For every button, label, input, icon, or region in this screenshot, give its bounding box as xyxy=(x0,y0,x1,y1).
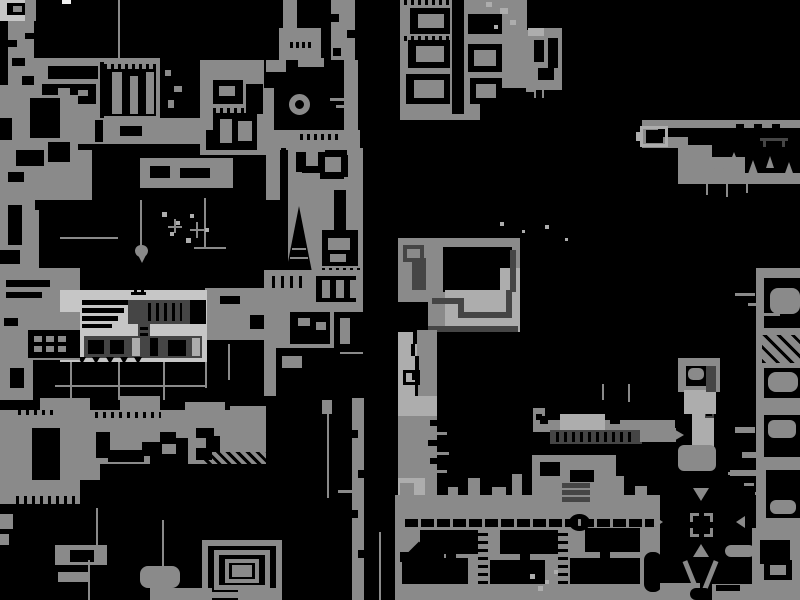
map-shape xyxy=(134,357,142,364)
map-shape xyxy=(266,130,280,200)
map-shape xyxy=(176,221,180,225)
map-shape xyxy=(430,458,437,464)
map-shape xyxy=(744,483,754,486)
map-shape xyxy=(18,410,58,415)
map-shape xyxy=(48,66,98,79)
teardrop-icon xyxy=(138,255,146,263)
selection-bracket xyxy=(690,534,699,537)
map-shape xyxy=(522,230,525,233)
map-shape xyxy=(95,120,103,142)
map-shape xyxy=(336,105,354,108)
map-shape xyxy=(219,86,235,96)
map-shape xyxy=(770,565,786,575)
map-shape xyxy=(205,362,207,388)
map-shape xyxy=(398,302,428,332)
map-shape xyxy=(500,530,558,554)
map-shape xyxy=(334,190,346,232)
map-shape xyxy=(333,48,341,56)
map-shape xyxy=(510,250,516,292)
map-shape xyxy=(490,560,545,584)
map-shape xyxy=(344,60,358,130)
map-shape xyxy=(735,427,755,433)
map-shape xyxy=(190,229,204,231)
map-shape xyxy=(204,452,266,480)
map-shape xyxy=(150,338,158,356)
map-shape xyxy=(782,141,785,147)
map-shape xyxy=(766,156,774,168)
map-shape xyxy=(538,586,543,591)
compass-right-arrow xyxy=(654,516,663,528)
map-shape xyxy=(290,257,308,259)
map-shape xyxy=(430,420,437,426)
map-shape xyxy=(60,237,118,239)
map-shape xyxy=(402,519,656,527)
map-shape xyxy=(150,454,180,464)
map-shape xyxy=(322,280,330,298)
map-shape xyxy=(316,322,326,330)
map-shape xyxy=(204,198,206,248)
ellipse-marker xyxy=(569,514,590,531)
map-shape xyxy=(140,327,148,330)
map-shape xyxy=(640,428,676,442)
map-shape xyxy=(534,86,536,98)
map-shape xyxy=(185,402,225,412)
map-shape xyxy=(58,346,66,352)
map-shape xyxy=(148,303,182,321)
map-shape xyxy=(220,119,232,143)
map-shape xyxy=(748,303,764,306)
map-shape xyxy=(8,205,22,245)
map-shape xyxy=(560,414,605,430)
map-shape xyxy=(108,450,144,462)
map-shape xyxy=(602,384,604,400)
map-shape xyxy=(25,0,36,21)
map-shape xyxy=(500,222,504,226)
map-shape xyxy=(168,100,174,108)
map-shape xyxy=(754,124,762,138)
map-shape xyxy=(763,141,766,147)
map-shape xyxy=(545,580,549,584)
map-shape xyxy=(118,362,120,400)
map-shape xyxy=(458,312,512,318)
map-shape xyxy=(748,160,758,174)
map-shape xyxy=(400,483,414,495)
map-shape xyxy=(95,412,161,418)
map-shape xyxy=(25,210,39,275)
map-shape xyxy=(82,308,124,313)
map-shape xyxy=(174,86,182,92)
map-shape xyxy=(570,558,640,584)
map-shape xyxy=(330,98,352,101)
map-shape xyxy=(82,324,112,328)
map-shape xyxy=(540,416,548,424)
map-shape xyxy=(352,398,364,600)
map-shape xyxy=(352,430,358,438)
map-shape xyxy=(534,40,544,62)
world-map xyxy=(0,0,800,600)
map-shape xyxy=(706,366,716,392)
map-shape xyxy=(437,470,447,473)
map-shape xyxy=(25,33,34,39)
map-shape xyxy=(327,414,329,498)
map-shape xyxy=(12,58,25,66)
selection-bracket xyxy=(690,513,693,522)
map-shape xyxy=(562,490,590,495)
map-shape xyxy=(428,440,437,446)
map-shape xyxy=(562,483,590,488)
map-shape xyxy=(336,280,344,298)
map-shape xyxy=(28,330,80,358)
compass-up-arrow xyxy=(693,544,709,557)
map-shape xyxy=(600,552,610,560)
map-shape xyxy=(220,296,240,304)
map-shape xyxy=(58,336,66,342)
map-shape xyxy=(264,88,274,130)
map-shape xyxy=(554,570,558,574)
map-shape xyxy=(542,86,544,98)
map-shape xyxy=(558,530,568,584)
map-shape xyxy=(0,514,13,529)
map-shape xyxy=(280,130,360,150)
map-shape xyxy=(476,84,496,98)
map-shape xyxy=(556,432,636,442)
map-shape xyxy=(330,254,346,262)
map-shape xyxy=(628,384,630,402)
map-shape xyxy=(238,121,252,141)
map-shape xyxy=(474,50,496,66)
map-shape xyxy=(34,336,42,342)
map-shape xyxy=(190,300,206,324)
map-shape xyxy=(46,336,54,342)
map-shape xyxy=(6,280,50,287)
map-shape xyxy=(585,528,640,552)
map-shape xyxy=(318,152,325,172)
map-shape xyxy=(118,0,120,58)
map-shape xyxy=(32,428,60,480)
map-shape xyxy=(690,588,711,600)
map-shape xyxy=(678,445,716,471)
map-shape xyxy=(736,124,744,136)
map-shape xyxy=(82,300,130,305)
map-shape xyxy=(494,25,498,29)
map-shape xyxy=(48,142,70,162)
map-shape xyxy=(548,38,558,68)
map-shape xyxy=(194,247,226,249)
nested-squares xyxy=(232,565,252,577)
map-shape xyxy=(0,250,20,264)
map-shape xyxy=(46,346,54,352)
map-shape xyxy=(162,212,167,217)
map-shape xyxy=(292,248,306,250)
map-shape xyxy=(340,318,350,344)
map-shape xyxy=(120,126,142,136)
map-shape xyxy=(110,340,124,354)
map-shape xyxy=(492,487,506,495)
map-shape xyxy=(0,534,9,545)
map-shape xyxy=(290,42,314,48)
map-shape xyxy=(570,470,594,482)
map-shape xyxy=(411,344,415,356)
map-shape xyxy=(55,385,207,387)
hash-icon xyxy=(131,286,146,289)
map-shape xyxy=(437,432,447,435)
map-shape xyxy=(70,550,94,562)
selection-bracket xyxy=(704,534,713,537)
map-shape xyxy=(328,238,350,250)
map-shape xyxy=(272,276,308,288)
hash-icon xyxy=(131,292,146,295)
map-shape xyxy=(286,206,312,272)
map-shape xyxy=(528,28,544,36)
map-shape xyxy=(352,510,358,518)
map-shape xyxy=(230,406,266,414)
map-shape xyxy=(282,356,302,368)
map-shape xyxy=(16,496,78,505)
map-shape xyxy=(206,130,213,150)
map-shape xyxy=(562,497,590,502)
map-shape xyxy=(770,500,796,514)
map-shape xyxy=(742,452,758,458)
map-shape xyxy=(510,20,516,25)
map-shape xyxy=(755,492,763,495)
map-shape xyxy=(162,520,164,566)
map-shape xyxy=(174,219,176,233)
map-shape xyxy=(735,293,755,296)
map-shape xyxy=(130,76,138,114)
map-shape xyxy=(404,36,450,41)
map-shape xyxy=(266,60,286,72)
map-shape xyxy=(62,0,71,4)
map-shape xyxy=(610,418,620,424)
map-shape xyxy=(96,508,98,548)
map-shape xyxy=(400,552,444,562)
ring-icon xyxy=(289,94,310,115)
map-shape xyxy=(714,158,724,170)
map-shape xyxy=(22,76,34,85)
map-shape xyxy=(163,362,165,400)
map-shape xyxy=(205,228,209,232)
map-shape xyxy=(88,340,104,354)
map-shape xyxy=(635,486,647,495)
map-shape xyxy=(13,6,22,12)
selection-bracket xyxy=(710,513,713,522)
map-shape xyxy=(88,560,90,600)
map-shape xyxy=(772,124,780,136)
map-shape xyxy=(379,532,381,600)
map-shape xyxy=(146,72,154,114)
map-shape xyxy=(636,132,642,141)
map-shape xyxy=(418,14,444,28)
map-shape xyxy=(512,474,522,495)
map-shape xyxy=(180,168,210,178)
map-shape xyxy=(10,368,24,388)
map-shape xyxy=(6,292,42,298)
map-shape xyxy=(784,162,794,176)
map-shape xyxy=(746,183,748,193)
map-shape xyxy=(322,400,332,414)
map-shape xyxy=(478,530,488,584)
map-shape xyxy=(716,585,740,591)
map-shape xyxy=(350,280,358,298)
map-shape xyxy=(8,172,24,182)
map-shape xyxy=(70,362,72,400)
map-shape xyxy=(446,554,456,560)
map-shape xyxy=(34,346,42,352)
map-shape xyxy=(730,152,738,162)
map-shape xyxy=(538,68,554,80)
map-shape xyxy=(16,150,44,166)
map-shape xyxy=(150,166,170,178)
map-shape xyxy=(140,566,180,588)
map-shape xyxy=(725,545,755,557)
map-shape xyxy=(120,396,160,412)
map-shape xyxy=(300,134,340,140)
map-shape xyxy=(706,183,708,195)
map-shape xyxy=(413,332,417,344)
map-shape xyxy=(4,318,18,326)
map-shape xyxy=(728,472,740,475)
map-shape xyxy=(768,420,796,438)
map-shape xyxy=(412,258,426,290)
map-shape xyxy=(298,318,310,326)
map-shape xyxy=(672,428,684,442)
map-shape xyxy=(768,372,798,392)
map-shape xyxy=(688,368,704,380)
map-shape xyxy=(168,340,186,356)
map-shape xyxy=(468,14,502,34)
map-shape xyxy=(415,356,419,370)
map-shape xyxy=(468,478,480,495)
map-shape xyxy=(30,98,60,138)
map-shape xyxy=(452,0,464,114)
map-shape xyxy=(545,225,549,229)
map-shape xyxy=(540,462,560,476)
map-shape xyxy=(165,70,171,76)
map-shape xyxy=(331,14,339,22)
map-shape xyxy=(120,357,128,364)
map-shape xyxy=(425,473,437,495)
map-shape xyxy=(140,200,142,246)
map-shape xyxy=(416,46,444,62)
map-shape xyxy=(132,338,140,356)
map-shape xyxy=(92,357,100,364)
map-shape xyxy=(500,8,508,14)
compass-left-arrow xyxy=(736,516,745,528)
map-shape xyxy=(192,338,200,356)
map-shape xyxy=(8,40,17,47)
greek-key-icon xyxy=(403,370,420,385)
map-shape xyxy=(358,470,364,478)
map-shape xyxy=(414,80,444,98)
map-shape xyxy=(190,214,194,218)
map-shape xyxy=(684,390,716,414)
map-shape xyxy=(160,432,176,444)
map-shape xyxy=(112,72,122,114)
map-shape xyxy=(58,572,90,582)
map-shape xyxy=(506,290,512,318)
map-shape xyxy=(338,490,354,493)
map-shape xyxy=(437,452,449,455)
map-shape xyxy=(445,290,515,292)
map-shape xyxy=(82,316,118,321)
map-shape xyxy=(520,554,530,560)
map-shape xyxy=(770,288,800,314)
map-shape xyxy=(565,238,568,241)
map-shape xyxy=(0,118,12,140)
map-shape xyxy=(347,30,355,38)
map-shape xyxy=(448,487,458,495)
map-shape xyxy=(762,335,800,363)
map-shape xyxy=(398,396,437,416)
map-shape xyxy=(106,357,114,364)
map-shape xyxy=(358,550,364,558)
map-shape xyxy=(298,58,324,67)
map-shape xyxy=(726,183,728,197)
map-shape xyxy=(404,0,450,5)
map-shape xyxy=(78,90,88,96)
map-shape xyxy=(340,354,363,396)
map-shape xyxy=(530,574,535,579)
map-shape xyxy=(186,238,191,243)
map-shape xyxy=(320,172,344,179)
compass-down-arrow xyxy=(693,488,709,501)
map-shape xyxy=(646,130,663,143)
map-shape xyxy=(228,344,230,380)
map-shape xyxy=(486,2,492,7)
map-shape xyxy=(760,313,780,316)
